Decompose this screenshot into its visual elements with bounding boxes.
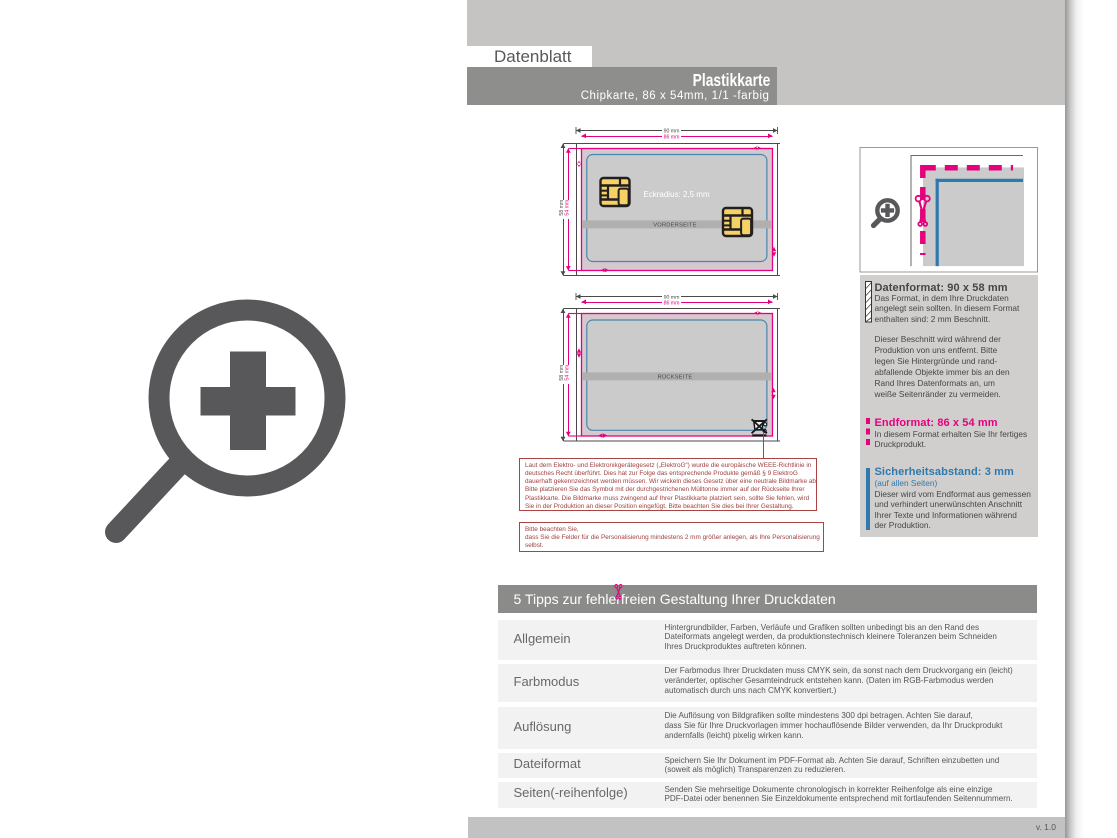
svg-text:86 mm: 86 mm <box>664 134 680 140</box>
svg-text:RÜCKSEITE: RÜCKSEITE <box>658 374 693 381</box>
svg-text:86 mm: 86 mm <box>664 300 680 306</box>
svg-text:54 mm: 54 mm <box>565 365 571 381</box>
svg-text:54 mm: 54 mm <box>565 200 571 216</box>
svg-text:Eckradius: 2,5 mm: Eckradius: 2,5 mm <box>643 190 710 199</box>
svg-text:VORDERSEITE: VORDERSEITE <box>653 223 697 229</box>
